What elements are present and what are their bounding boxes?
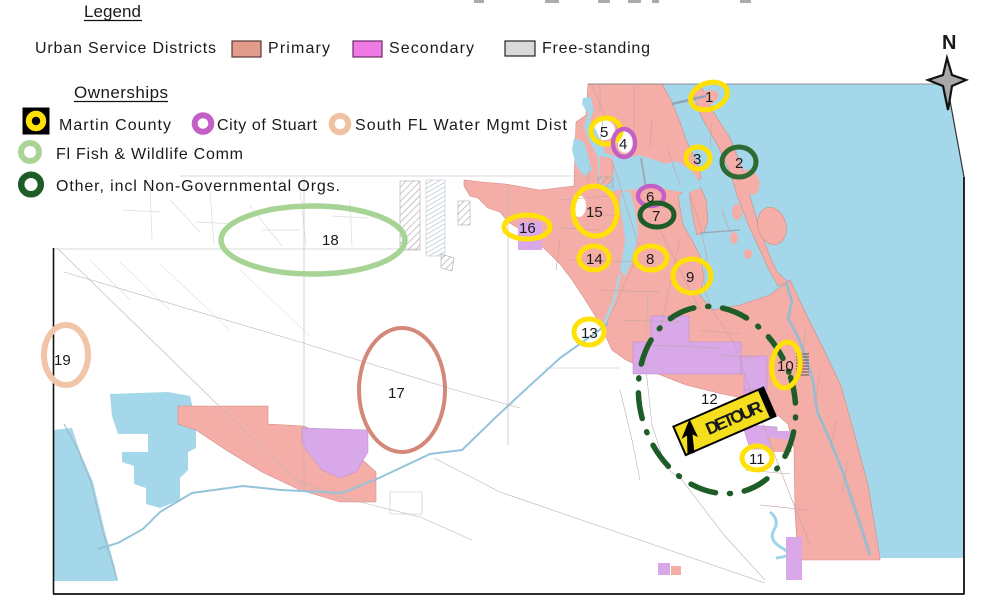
- svg-text:19: 19: [54, 352, 71, 369]
- svg-text:Secondary: Secondary: [389, 40, 474, 57]
- svg-text:11: 11: [749, 451, 765, 468]
- svg-text:1: 1: [705, 89, 713, 106]
- svg-text:10: 10: [777, 358, 794, 375]
- svg-text:Legend: Legend: [84, 2, 141, 21]
- svg-text:17: 17: [388, 385, 405, 402]
- svg-text:6: 6: [646, 189, 654, 206]
- svg-text:16: 16: [519, 220, 536, 237]
- svg-text:Primary: Primary: [268, 40, 330, 57]
- svg-text:7: 7: [652, 208, 660, 225]
- svg-text:Fl Fish & Wildlife Comm: Fl Fish & Wildlife Comm: [56, 146, 243, 163]
- svg-text:3: 3: [693, 151, 701, 168]
- svg-text:Urban Service Districts: Urban Service Districts: [35, 40, 216, 57]
- svg-text:City of Stuart: City of Stuart: [217, 117, 318, 134]
- svg-text:Free-standing: Free-standing: [542, 40, 650, 57]
- svg-text:Martin County: Martin County: [59, 117, 171, 134]
- svg-text:Other, incl Non-Governmental: Other, incl Non-Governmental Orgs.: [56, 178, 340, 195]
- svg-text:18: 18: [322, 232, 339, 249]
- svg-text:14: 14: [586, 251, 603, 268]
- svg-text:12: 12: [701, 391, 718, 408]
- svg-text:5: 5: [600, 124, 608, 141]
- svg-text:15: 15: [586, 204, 603, 221]
- svg-text:Ownerships: Ownerships: [74, 83, 168, 102]
- svg-text:South FL Water Mgmt Dist: South FL Water Mgmt Dist: [355, 117, 568, 134]
- svg-text:13: 13: [581, 325, 598, 342]
- svg-text:2: 2: [735, 155, 743, 172]
- svg-text:4: 4: [619, 136, 627, 153]
- svg-text:8: 8: [646, 251, 654, 268]
- svg-text:9: 9: [686, 269, 694, 286]
- svg-text:N: N: [942, 32, 956, 54]
